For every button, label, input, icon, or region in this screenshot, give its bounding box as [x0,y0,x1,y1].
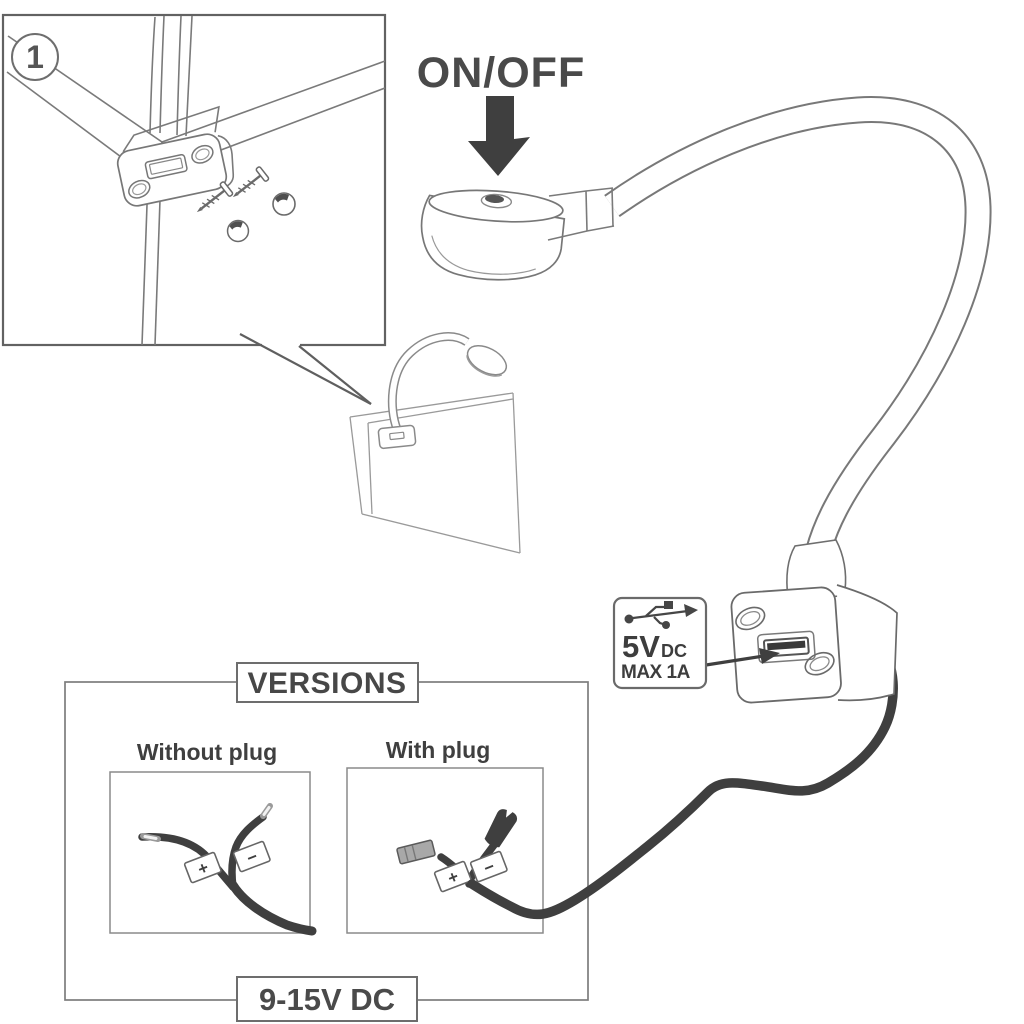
usb-max-current: MAX 1A [621,662,691,683]
inset-gooseneck [392,337,467,429]
versions-title: VERSIONS [247,667,406,700]
polarity-tag-positive: + [434,861,471,892]
inset-panel-drawing [350,393,520,553]
collar-line [549,188,613,196]
polarity-tag-positive: + [184,852,221,883]
lamp-drawing [418,110,978,584]
on-off-callout: ON/OFF [417,49,585,176]
diagram-canvas: 1 ON/OFF [0,0,1024,1024]
inset-board-edge [368,423,372,514]
step1-callout-panel: 1 [3,15,385,404]
versions-outer-box [65,682,588,1000]
gooseneck-arm [612,110,978,584]
step-number-badge: 1 [12,34,58,80]
base-unit [730,540,897,703]
base-side-face [837,585,897,700]
callout-tail-line [299,346,371,404]
instruction-diagram-page: 1 ON/OFF [0,0,1024,1024]
supply-cable [233,885,312,931]
installed-lamp-inset [350,337,520,553]
lamp-head [418,186,566,284]
collar-line [612,188,613,226]
crimp-connector-gray [397,840,436,864]
inset-board-edge [350,393,513,417]
step-number: 1 [26,39,44,75]
versions-section: VERSIONS Without plug With plug + − [65,663,588,1021]
plug-connector-black [482,806,520,851]
collar-line [586,191,587,231]
without-plug-label: Without plug [137,739,277,765]
screw-cap [273,193,295,215]
usb-voltage: 5V [622,629,660,664]
without-plug-wiring: + − [142,806,312,931]
usb-voltage-unit: DC [661,641,687,661]
polarity-tag-negative: − [470,851,507,882]
inset-board-edge [513,393,520,553]
screw-cap [228,221,249,242]
inset-lamp-head [462,340,511,382]
inset-base-block [378,425,416,449]
inset-board-edge [362,514,520,553]
supply-range-label: 9-15V DC [259,982,395,1017]
inset-board-edge [350,417,362,514]
with-plug-label: With plug [386,737,491,763]
arrow-down-icon [468,96,530,176]
with-plug-wiring: + − [397,806,520,892]
base-front [730,586,841,703]
on-off-label: ON/OFF [417,49,585,97]
inset-gooseneck-outline [392,337,467,429]
bare-wire-tip-core [145,837,156,839]
without-plug-box [110,772,310,933]
